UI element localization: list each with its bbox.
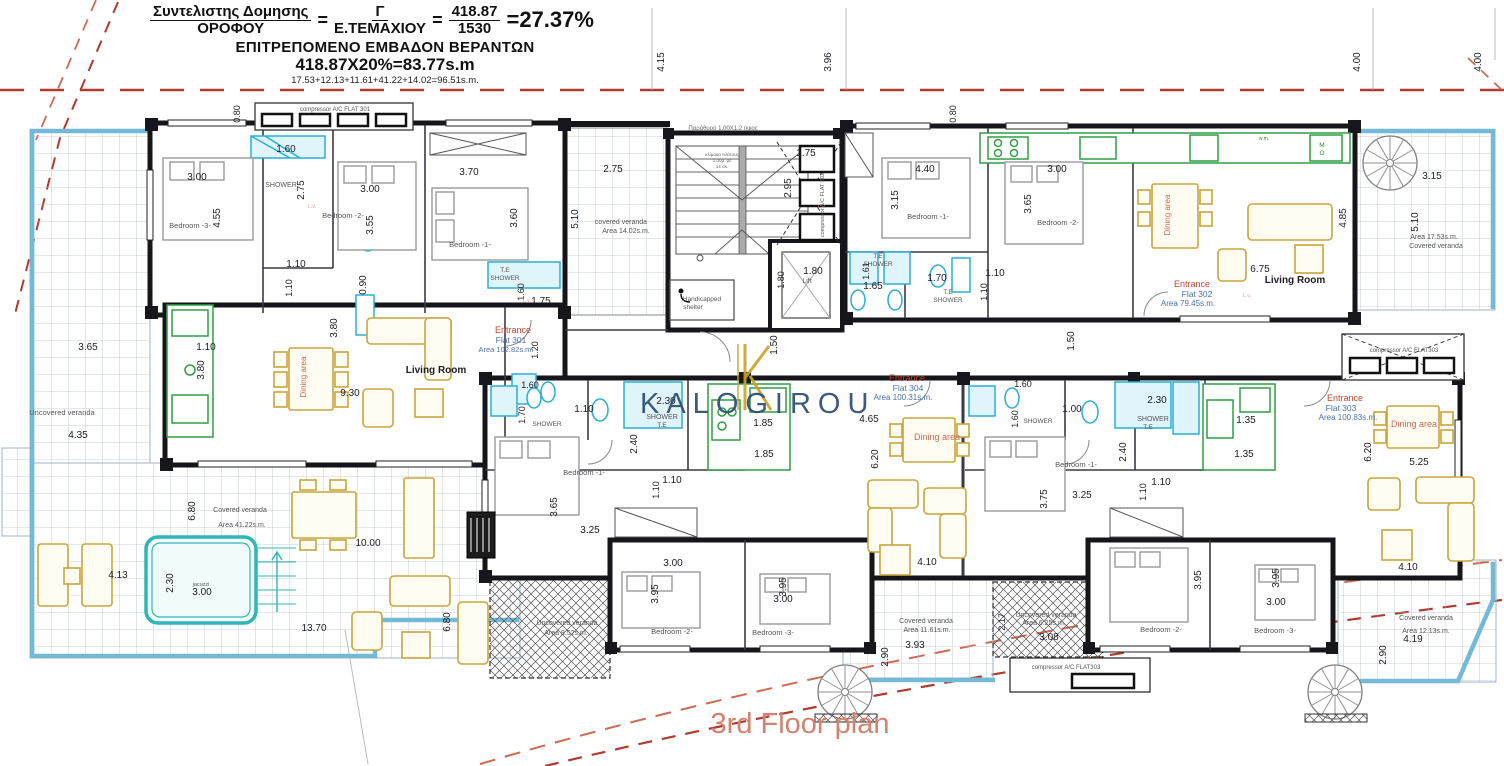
plan-label: 6.20 <box>870 449 881 469</box>
plan-label: Area 41.22s.m. <box>218 522 266 529</box>
plan-label: Bedroom -3- <box>752 628 794 637</box>
plan-label: 5.25 <box>1409 457 1429 468</box>
plan-label: Bedroom -2- <box>651 627 693 636</box>
lift-label: Lift <box>802 278 811 285</box>
plan-label: 3.95 <box>650 584 661 604</box>
plan-label: 1.50 <box>1066 331 1077 351</box>
plan-label: 4.19 <box>1403 634 1423 645</box>
plan-label: 3.00 <box>1047 164 1067 175</box>
density-formula: Συντελιστης ΔομησηςΟΡΟΦΟΥ = ΓΕ.ΤΕΜΑΧΙΟΥ … <box>150 4 620 37</box>
plan-label: T.E <box>657 422 667 429</box>
plan-label: 4.15 <box>656 52 667 72</box>
plan-label: Dining area <box>914 432 960 442</box>
plan-label: Area 11.61s.m. <box>904 627 951 634</box>
plan-label: Living Room <box>406 365 467 376</box>
plan-label: 4.10 <box>917 557 937 568</box>
plan-label: 2.30 <box>165 573 176 593</box>
plan-label: 4.40 <box>915 164 935 175</box>
plan-label: 2.30 <box>1147 395 1167 406</box>
plan-label: 5.10 <box>570 209 581 229</box>
handicapped-shelter-label: Handicapped <box>683 296 722 303</box>
veranda-area-sum: 17.53+12.13+11.61+41.22+14.02=96.51s.m. <box>150 75 620 86</box>
spiral-staircase-icon <box>1363 136 1417 190</box>
plan-label: Bedroom -2- <box>322 211 364 220</box>
plan-label: T.E <box>1143 424 1153 431</box>
plan-label: 1.10 <box>985 268 1005 279</box>
equals-sign: = <box>432 10 443 31</box>
plan-label: Bedroom -3- <box>169 221 211 230</box>
plan-label: 9.30 <box>340 388 360 399</box>
plan-label: Covered veranda <box>899 618 953 625</box>
plan-label: 4.00 <box>1352 52 1363 72</box>
ac-compressor-label: compressor A/C FLAT 301 <box>300 107 371 113</box>
floor-plan-drawing: 4.153.964.004.000.80compressor A/C FLAT … <box>0 0 1504 766</box>
flat-302-entrance-label: Entrance <box>1174 279 1210 289</box>
plan-label: Area 17.53s.m. <box>1410 234 1458 241</box>
allowed-veranda-area-value: 418.87Χ20%=83.77s.m <box>150 56 620 73</box>
plan-label: 10.00 <box>355 538 380 549</box>
plan-label: 0.80 <box>232 105 242 123</box>
plan-label: SHOWER <box>490 275 520 282</box>
plan-label: covered veranda <box>595 219 647 226</box>
plan-label: 13.70 <box>301 623 326 634</box>
plan-label: 1.10 <box>1151 477 1171 488</box>
kalogirou-watermark: KALOGIROU <box>640 388 868 421</box>
plan-label: 3.75 <box>1039 489 1050 509</box>
plan-label: Bedroom -1- <box>563 468 605 477</box>
plan-label: 1.10 <box>196 342 216 353</box>
ac-compressor-label: compressor A/C FLAT303 <box>1032 665 1101 671</box>
flat-304-entrance-label: Entrance <box>889 373 925 383</box>
plan-label: 3.00 <box>192 587 212 598</box>
plan-label: T.E <box>500 267 510 274</box>
plan-label: 3.25 <box>580 525 600 536</box>
ac-compressor-label: compressor A/C FLAT 302 <box>820 173 826 237</box>
plan-label: Bedroom -3- <box>1254 626 1296 635</box>
plan-label: 1.65 <box>863 281 883 292</box>
plan-label: 3.93 <box>905 640 925 651</box>
plan-label: 1.60 <box>276 144 296 155</box>
plan-label: 3.96 <box>823 52 834 72</box>
equals-sign: = <box>317 10 328 31</box>
plan-label: 1.35 <box>1234 449 1254 460</box>
plan-label: SHOWER <box>532 421 562 428</box>
spiral-staircase-icon <box>1308 665 1362 719</box>
stair-note: 14 σκ. <box>716 164 729 169</box>
formula-denominator: 1530 <box>458 21 491 37</box>
plan-label: 1.75 <box>796 148 816 159</box>
plan-label: Dining area <box>1391 419 1437 429</box>
plan-label: 0.90 <box>358 275 369 295</box>
plan-label: 3.00 <box>1266 597 1286 608</box>
plan-label: 1.70 <box>927 273 947 284</box>
plan-label: Bedroom -2- <box>1037 218 1079 227</box>
flat-301-entrance-label: Entrance <box>495 325 531 335</box>
plan-label: 3.15 <box>890 190 901 210</box>
plan-label: SHOWER <box>933 297 963 304</box>
plan-label: L.v. <box>523 298 531 304</box>
plan-label: w.m. <box>1259 136 1269 142</box>
plan-label: 6.20 <box>1363 442 1374 462</box>
plan-label: 1.00 <box>1062 404 1082 415</box>
floor-plan-page: 4.153.964.004.000.80compressor A/C FLAT … <box>0 0 1504 766</box>
plan-label: SHOWER <box>1137 416 1169 423</box>
plan-label: L.v. <box>308 204 316 210</box>
plan-label: Dining area <box>1163 194 1172 235</box>
plan-label: Covered veranda <box>1409 243 1463 250</box>
plan-label: T.E <box>873 253 883 260</box>
plan-label: 1.10 <box>574 404 594 415</box>
plan-label: 3.70 <box>459 167 479 178</box>
stair-note: κλίμακα πλάτους <box>705 151 739 157</box>
flat-303-label: Flat 303 <box>1326 403 1357 413</box>
plan-label: 1.60 <box>1014 379 1032 389</box>
flat-304-label: Flat 304 <box>893 383 924 393</box>
plan-label: 1.61 <box>861 262 871 280</box>
plan-label: 1.20 <box>530 341 540 359</box>
plan-label: Dining area <box>299 356 308 397</box>
uncovered-veranda-304 <box>490 578 610 678</box>
plan-label: Uncovered veranda <box>29 408 95 417</box>
plan-label: 3.95 <box>1193 570 1204 590</box>
plan-label: 4.55 <box>212 208 223 228</box>
flat-303-area-label: Area 100.83s.m. <box>1319 413 1378 422</box>
flat-302-label: Flat 302 <box>1182 289 1213 299</box>
plan-label: 6.75 <box>1250 264 1270 275</box>
plan-label: 2.75 <box>296 180 307 200</box>
plan-label: Uncovered veranda <box>1015 612 1076 619</box>
plan-label: 1.80 <box>776 271 786 289</box>
formula-denominator: Ε.ΤΕΜΑΧΙΟΥ <box>334 21 426 37</box>
formula-numerator: Συντελιστης Δομησης <box>150 4 311 21</box>
flat-301-area-label: Area 102.82s.m. <box>478 345 533 354</box>
plan-label: 3.00 <box>187 172 207 183</box>
plan-label: 3.25 <box>1072 490 1092 501</box>
bbq-grill <box>467 512 495 558</box>
plan-label: 3.08 <box>1039 632 1059 643</box>
plan-label: 2.40 <box>629 434 640 454</box>
plan-label: Bedroom -1- <box>907 212 949 221</box>
plan-label: 3.65 <box>1023 194 1034 214</box>
kitchen-302 <box>980 133 1350 163</box>
plan-label: Area 8.52s.m. <box>544 630 588 637</box>
plan-label: 1.60 <box>1010 410 1020 428</box>
plan-label: 3.65 <box>78 342 98 353</box>
plan-label: 1.85 <box>754 449 774 460</box>
plan-label: Bedroom -1- <box>1055 460 1097 469</box>
plan-label: 4.35 <box>68 430 88 441</box>
plan-label: Παράθυρο 1.00Χ1.2 ύψος <box>688 125 757 132</box>
allowed-veranda-area-title: ΕΠΙΤΡΕΠΟΜΕΝΟ ΕΜΒΑΔΟΝ ΒΕΡΑΝΤΩΝ <box>150 39 620 56</box>
plan-label: L.v. <box>1243 293 1251 299</box>
plan-label: 1.10 <box>286 259 306 270</box>
plan-label: 3.80 <box>196 360 207 380</box>
plan-label: 3.00 <box>663 558 683 569</box>
formula-denominator: ΟΡΟΦΟΥ <box>197 21 264 37</box>
flat-301-label: Flat 301 <box>496 335 527 345</box>
floor-plan-title: 3rd Floor plan <box>610 708 990 741</box>
plan-label: T.E <box>943 289 953 296</box>
plan-label: 4.10 <box>1398 562 1418 573</box>
plan-label: 1.60 <box>521 380 539 390</box>
plan-label: 1.10 <box>662 475 682 486</box>
flat-303-entrance-label: Entrance <box>1327 393 1363 403</box>
plan-label: 2.75 <box>603 164 623 175</box>
formula-numerator: Γ <box>372 4 387 21</box>
plan-label: 4.13 <box>108 570 128 581</box>
formula-result: =27.37% <box>506 7 593 33</box>
plan-label: 3.00 <box>360 184 380 195</box>
flat-302-area-label: Area 79.45s.m. <box>1161 299 1215 308</box>
plan-label: 3.80 <box>329 318 340 338</box>
plan-label: Living Room <box>1265 275 1326 286</box>
plan-label: Covered veranda <box>213 507 267 514</box>
plan-label: 2.40 <box>1118 442 1129 462</box>
handicapped-shelter-label: shelter <box>683 304 703 311</box>
plan-label: Bedroom -2- <box>1140 625 1182 634</box>
plan-label: Area 14.02s.m. <box>602 228 650 235</box>
plan-label: 2.90 <box>880 647 891 667</box>
plan-label: M <box>1319 142 1324 149</box>
formula-numerator: 418.87 <box>449 4 501 21</box>
plan-label: 1.70 <box>517 406 527 424</box>
ac-compressor-label: compressor A/C FLAT303 <box>1370 348 1439 354</box>
plan-label: Covered veranda <box>1399 615 1453 622</box>
plan-label: 2.90 <box>1378 645 1389 665</box>
plan-label: 2.17 <box>997 613 1007 631</box>
plan-label: 1.10 <box>979 283 989 301</box>
plan-label: 1.35 <box>1236 415 1256 426</box>
plan-label: 2.95 <box>783 178 794 198</box>
plan-label: 3.15 <box>1422 171 1442 182</box>
stair-note: 1.00μ. με <box>713 158 731 163</box>
plan-label: 6.80 <box>187 501 198 521</box>
plan-label: 1.10 <box>651 481 661 499</box>
plan-label: 3.60 <box>509 208 520 228</box>
flat-304-area-label: Area 100.31s.m. <box>874 393 933 402</box>
plan-label: 4.85 <box>1338 208 1349 228</box>
plan-label: 3.55 <box>365 215 376 235</box>
plan-label: O <box>1319 150 1324 157</box>
plan-label: 6.80 <box>442 612 453 632</box>
plan-label: Uncovered veranda <box>536 620 597 627</box>
plan-label: 5.10 <box>1410 212 1421 232</box>
plan-label: 3.00 <box>773 594 793 605</box>
plan-label: 4.00 <box>1473 52 1484 72</box>
header-formulas: Συντελιστης ΔομησηςΟΡΟΦΟΥ = ΓΕ.ΤΕΜΑΧΙΟΥ … <box>150 4 620 86</box>
plan-label: 1.80 <box>803 266 823 277</box>
plan-label: SHOWER <box>265 182 297 189</box>
plan-label: 1.10 <box>284 279 294 297</box>
plan-label: Bedroom -1- <box>449 240 491 249</box>
plan-label: 1.10 <box>1138 483 1148 501</box>
plan-label: Area 6.25s.m. <box>1022 620 1066 627</box>
plan-label: 3.95 <box>1271 568 1282 588</box>
plan-label: 1.50 <box>769 335 780 355</box>
plan-label: 0.80 <box>948 105 958 123</box>
plan-label: SHOWER <box>1023 418 1053 425</box>
plan-label: 3.65 <box>549 497 560 517</box>
plan-label: 1.75 <box>531 296 551 307</box>
